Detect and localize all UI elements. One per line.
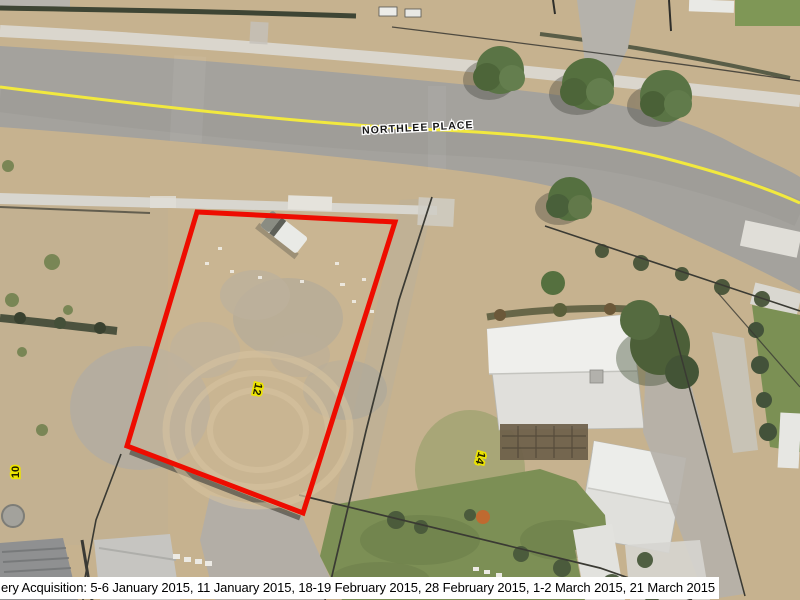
concrete-path xyxy=(417,197,454,227)
main-house-roof xyxy=(487,314,644,430)
aerial-map[interactable]: NORTHLEE PLACE 10 12 14 xyxy=(0,0,800,600)
road-seam xyxy=(170,55,206,143)
lawn-top-right xyxy=(735,0,800,26)
lot-label-10: 10 xyxy=(10,466,22,478)
lot-label-12: 12 xyxy=(250,382,264,396)
imagery-acquisition-bar: ery Acquisition: 5-6 January 2015, 11 Ja… xyxy=(0,577,719,599)
orange-shrub xyxy=(476,510,490,524)
ground-tank xyxy=(2,505,24,527)
chimney xyxy=(590,370,603,383)
pergola-deck xyxy=(500,424,588,460)
driveway-apron xyxy=(150,196,176,208)
driveway-apron xyxy=(288,195,332,211)
upper-driveway xyxy=(249,22,268,45)
roof-sliver xyxy=(778,413,800,469)
bush xyxy=(541,271,565,295)
roof-top-right xyxy=(689,0,734,13)
